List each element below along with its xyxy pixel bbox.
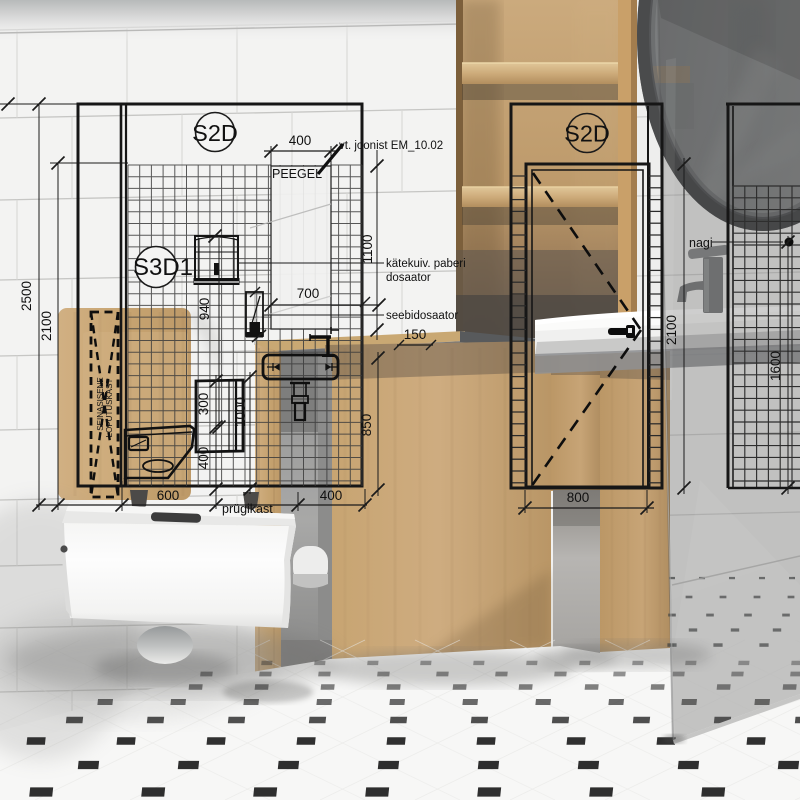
svg-text:LOPUTUSKAST: LOPUTUSKAST	[105, 379, 114, 438]
svg-text:2500: 2500	[19, 281, 34, 311]
svg-text:2100: 2100	[39, 311, 54, 341]
svg-text:PEEGEL: PEEGEL	[272, 167, 322, 181]
svg-text:400: 400	[196, 447, 211, 470]
svg-text:940: 940	[197, 298, 212, 321]
svg-text:600: 600	[157, 488, 180, 503]
svg-text:300: 300	[196, 393, 211, 416]
svg-text:850: 850	[359, 414, 374, 437]
svg-text:400: 400	[289, 133, 312, 148]
svg-text:800: 800	[567, 490, 590, 505]
svg-text:seebidosaator: seebidosaator	[386, 310, 458, 322]
svg-text:1100: 1100	[360, 234, 375, 263]
svg-text:kätekuiv. paberi: kätekuiv. paberi	[386, 258, 466, 270]
svg-text:700: 700	[297, 286, 320, 301]
svg-text:S2D: S2D	[564, 121, 610, 147]
svg-text:2100: 2100	[664, 315, 679, 345]
svg-text:S3D1: S3D1	[133, 254, 193, 281]
svg-text:dosaator: dosaator	[386, 272, 431, 284]
svg-text:150: 150	[404, 327, 427, 342]
svg-text:prügikast: prügikast	[222, 502, 273, 516]
svg-text:SEINASISENE: SEINASISENE	[96, 377, 105, 430]
svg-text:nagi: nagi	[689, 236, 713, 250]
svg-text:400: 400	[320, 488, 343, 503]
svg-text:vt. joonist EM_10.02: vt. joonist EM_10.02	[339, 140, 443, 152]
svg-text:1600: 1600	[768, 351, 783, 381]
svg-text:S2D: S2D	[192, 120, 238, 146]
svg-text:1000: 1000	[233, 397, 248, 427]
